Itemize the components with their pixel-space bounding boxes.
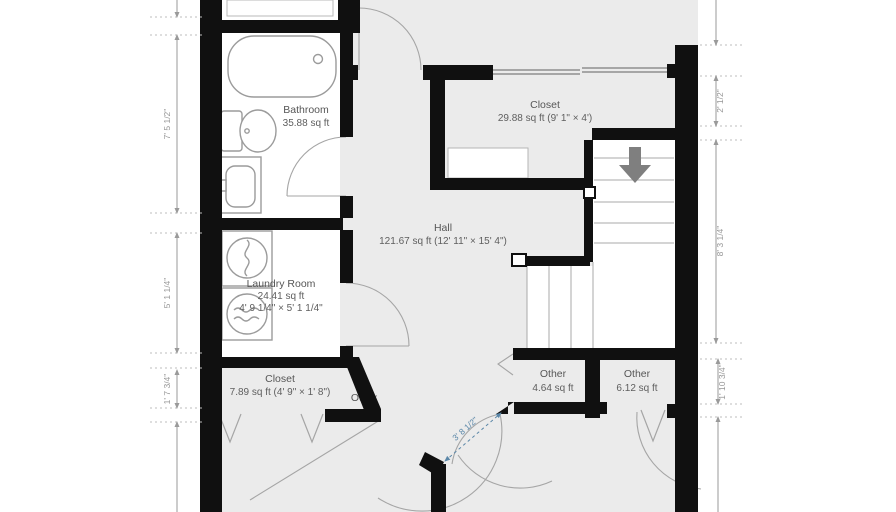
- svg-text:121.67 sq ft (12' 11" × 15' 4": 121.67 sq ft (12' 11" × 15' 4"): [379, 236, 507, 247]
- closet-shelf: [448, 148, 528, 178]
- floor-plan-svg: Other Bathroom 35.88 sq ft Closet 29.88 …: [0, 0, 896, 512]
- svg-text:Laundry Room: Laundry Room: [247, 278, 316, 290]
- svg-text:Hall: Hall: [434, 222, 452, 234]
- svg-text:Closet: Closet: [530, 99, 560, 111]
- bathtub-icon: [228, 36, 336, 97]
- stair-lower-flight-floor: [527, 266, 593, 348]
- svg-text:24.41 sq ft: 24.41 sq ft: [258, 291, 305, 302]
- svg-text:6.12 sq ft: 6.12 sq ft: [616, 383, 657, 394]
- svg-text:29.88 sq ft (9' 1" × 4'): 29.88 sq ft (9' 1" × 4'): [498, 113, 592, 124]
- floor-plan-page: Other Bathroom 35.88 sq ft Closet 29.88 …: [0, 0, 896, 512]
- svg-text:Bathroom: Bathroom: [283, 104, 329, 116]
- svg-text:4.64 sq ft: 4.64 sq ft: [532, 383, 573, 394]
- dim-label-right-2: 1' 10 3/4": [717, 364, 727, 399]
- toilet-icon: [221, 110, 276, 152]
- dim-label-right-1: 8' 3 1/4": [715, 226, 725, 257]
- svg-text:Closet: Closet: [265, 373, 295, 385]
- dim-label-right-0: 2' 1/2": [715, 89, 725, 113]
- dim-label-left-1: 5' 1 1/4": [162, 278, 172, 309]
- svg-text:4' 9 1/4" × 5' 1 1/4": 4' 9 1/4" × 5' 1 1/4": [239, 303, 323, 314]
- dimensions-left: 7' 5 1/2" 5' 1 1/4" 1' 7 3/4": [150, 0, 205, 512]
- dim-label-left-0: 7' 5 1/2": [162, 109, 172, 140]
- sink-vanity-icon: [217, 157, 261, 213]
- svg-text:7.89 sq ft (4' 9" × 1' 8"): 7.89 sq ft (4' 9" × 1' 8"): [230, 387, 331, 398]
- svg-text:35.88 sq ft: 35.88 sq ft: [283, 118, 330, 129]
- dimensions-right: 2' 1/2" 8' 3 1/4" 1' 10 3/4": [700, 0, 745, 512]
- bathtub-drain-icon: [314, 55, 323, 64]
- dim-label-left-2: 1' 7 3/4": [162, 374, 172, 405]
- svg-text:Other: Other: [624, 368, 651, 380]
- svg-text:Other: Other: [540, 368, 567, 380]
